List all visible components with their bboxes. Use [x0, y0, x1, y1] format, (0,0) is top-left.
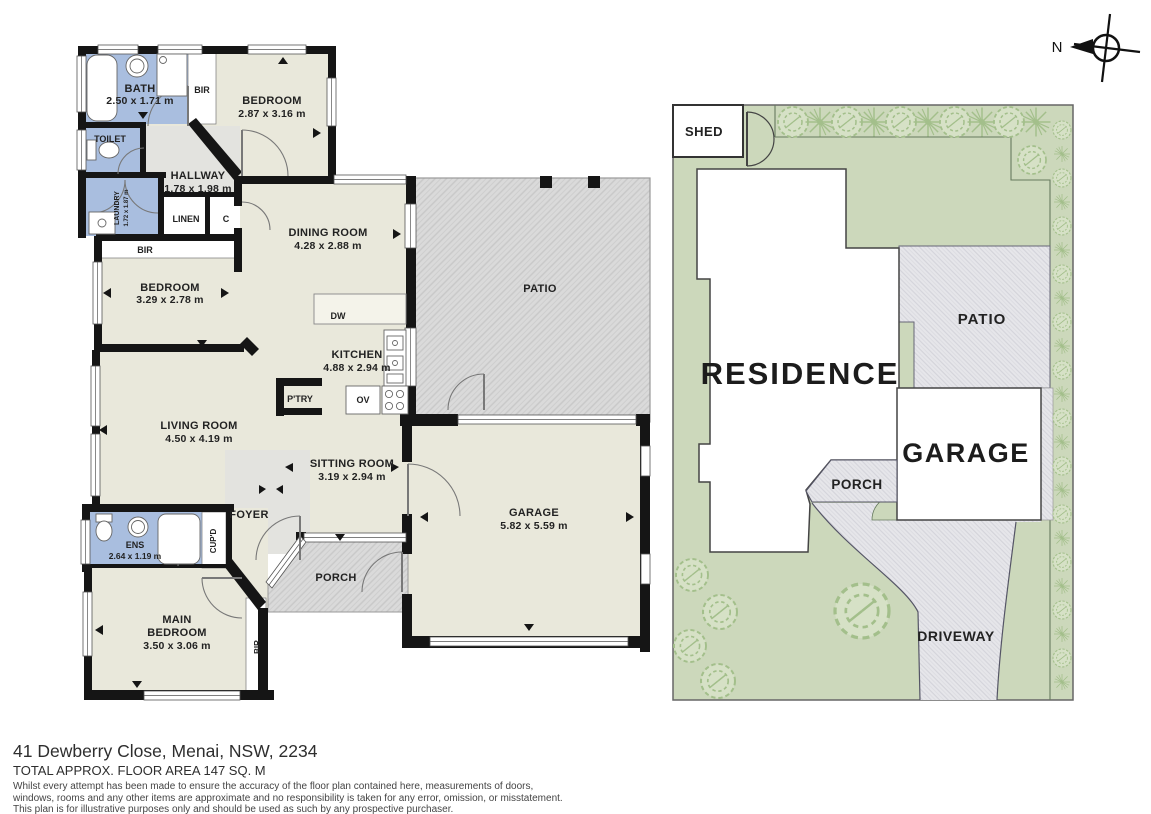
dining-dims: 4.28 x 2.88 m — [294, 240, 361, 252]
bathtub — [87, 55, 117, 121]
ens-toilet-pan — [96, 521, 112, 541]
bath-dims: 2.50 x 1.71 m — [106, 95, 173, 107]
cupd-label: CUP'D — [209, 528, 218, 553]
kitchen-bench — [314, 294, 406, 324]
bedroom1-dims: 2.87 x 3.16 m — [238, 108, 305, 120]
ens-dims: 2.64 x 1.19 m — [109, 551, 162, 561]
siteplan: SHED RESIDENCE PATIO GARAGE PORCH DRIVEW… — [673, 105, 1073, 700]
driveway-label: DRIVEWAY — [917, 628, 995, 644]
laundry-label: LAUNDRY — [114, 191, 121, 225]
patio-site-label: PATIO — [958, 311, 1007, 328]
disclaimer-line-3: This plan is for illustrative purposes o… — [13, 804, 563, 814]
floor-area-line: TOTAL APPROX. FLOOR AREA 147 SQ. M — [13, 763, 563, 778]
main-bed-label-1: MAIN — [162, 614, 191, 626]
patio-fp-label: PATIO — [523, 283, 557, 295]
dw-label: DW — [331, 311, 346, 321]
dining-label: DINING ROOM — [288, 227, 367, 239]
address-line: 41 Dewberry Close, Menai, NSW, 2234 — [13, 741, 563, 762]
shed-label: SHED — [685, 124, 723, 139]
floor-fills — [82, 50, 650, 700]
sitting-label: SITTING ROOM — [310, 458, 394, 470]
porch-fp-label: PORCH — [315, 572, 356, 584]
hallway-label: HALLWAY — [171, 170, 226, 182]
sitting-dims: 3.19 x 2.94 m — [318, 471, 385, 483]
main-bed-label-2: BEDROOM — [147, 627, 207, 639]
disclaimer-line-1: Whilst every attempt has been made to en… — [13, 781, 563, 793]
bir2-label: BIR — [137, 245, 153, 255]
bath-label: BATH — [125, 83, 156, 95]
cooktop — [382, 386, 408, 414]
floorplan: BATH 2.50 x 1.71 m BIR BEDROOM 2.87 x 3.… — [77, 45, 650, 700]
ens-bathtub — [158, 514, 200, 564]
plan-drawing: BATH 2.50 x 1.71 m BIR BEDROOM 2.87 x 3.… — [0, 0, 1151, 814]
bir-top-label: BIR — [194, 85, 210, 95]
laundry-dims: 1.72 x 1.87 m — [124, 189, 130, 226]
north-label: N — [1052, 39, 1063, 56]
toilet-label: TOILET — [94, 134, 126, 144]
residence-label: RESIDENCE — [701, 356, 900, 391]
c-label: C — [223, 214, 230, 224]
disclaimer-line-2: windows, rooms and any other items are a… — [13, 793, 563, 805]
compass: N — [1052, 14, 1140, 82]
north-arrow-icon — [1070, 39, 1093, 54]
hallway-dims: 1.78 x 1.98 m — [164, 183, 231, 195]
floorplan-page: BATH 2.50 x 1.71 m BIR BEDROOM 2.87 x 3.… — [0, 0, 1151, 814]
oven-label: OV — [356, 395, 369, 405]
footer: 41 Dewberry Close, Menai, NSW, 2234 TOTA… — [13, 741, 563, 814]
foyer-label: FOYER — [229, 509, 268, 521]
main-bed-dims: 3.50 x 3.06 m — [143, 640, 210, 652]
side-path — [1041, 388, 1053, 520]
garage-fp-label: GARAGE — [509, 507, 559, 519]
bir-main-label: BIR — [253, 640, 262, 654]
garage-floor — [406, 420, 646, 646]
ens-label: ENS — [126, 540, 145, 550]
bedroom1-label: BEDROOM — [242, 95, 302, 107]
bedroom2-dims: 3.29 x 2.78 m — [136, 294, 203, 306]
porch-site-label: PORCH — [831, 477, 882, 492]
garage-site-label: GARAGE — [902, 438, 1030, 468]
living-label: LIVING ROOM — [160, 420, 237, 432]
living-dims: 4.50 x 4.19 m — [165, 433, 232, 445]
kitchen-label: KITCHEN — [332, 349, 383, 361]
garage-fp-dims: 5.82 x 5.59 m — [500, 520, 567, 532]
pantry-label: P'TRY — [287, 394, 313, 404]
patio-paving — [414, 178, 650, 422]
linen-label: LINEN — [173, 214, 200, 224]
toilet-pan — [99, 142, 119, 158]
bedroom2-label: BEDROOM — [140, 282, 200, 294]
bir2-closet — [100, 240, 240, 258]
kitchen-dims: 4.88 x 2.94 m — [323, 362, 390, 374]
